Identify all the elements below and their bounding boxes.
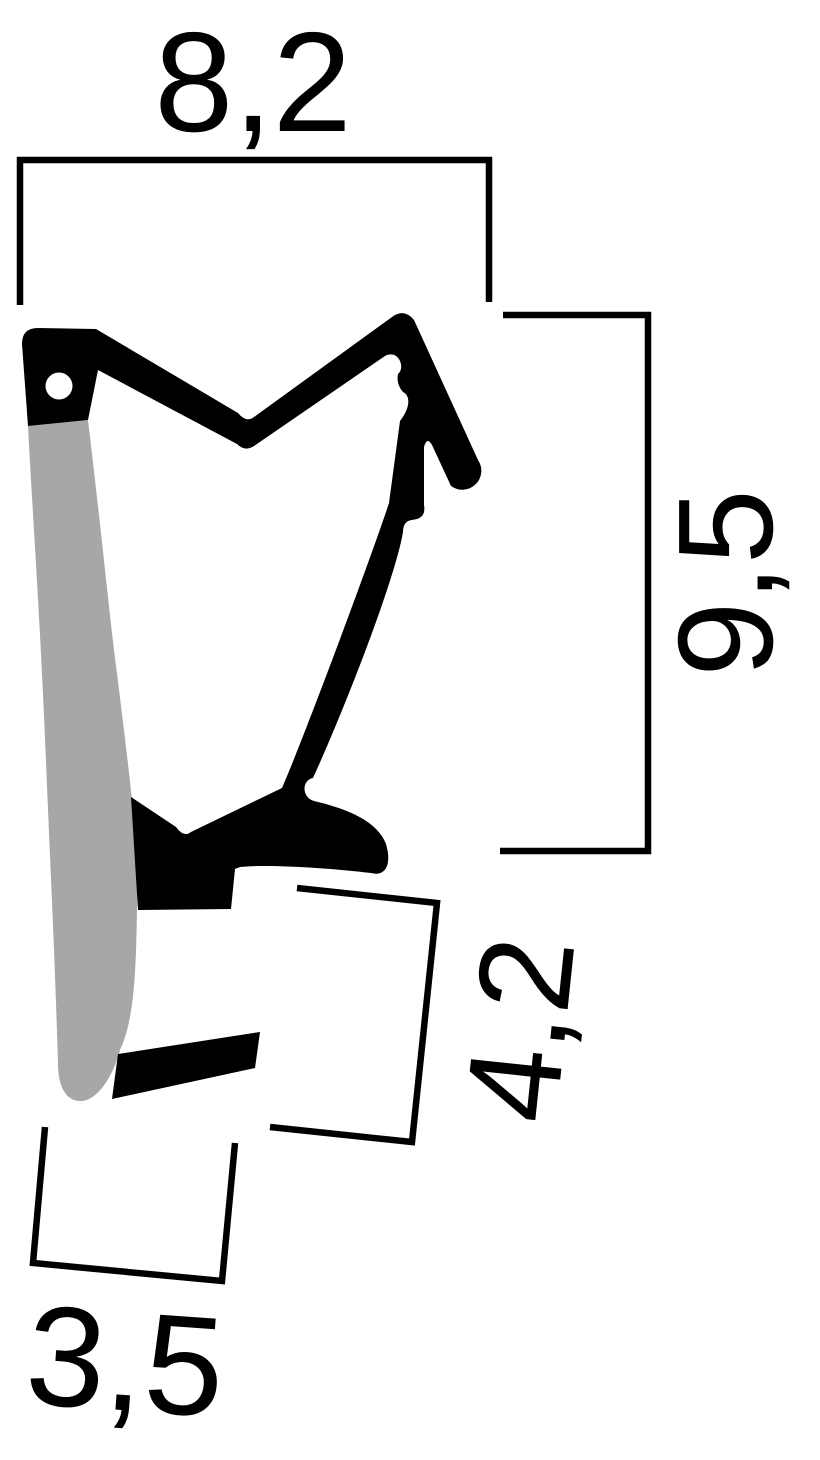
- dim-top-width-label: 8,2: [154, 3, 351, 162]
- dim-mid-height-bracket: [270, 888, 437, 1142]
- dimension-labels: 8,2 9,5 4,2 3,5: [21, 3, 801, 1448]
- dim-right-height-bracket: [500, 315, 648, 851]
- dim-bottom-width-label: 3,5: [21, 1275, 229, 1447]
- profile-drawing-svg: 8,2 9,5 4,2 3,5: [0, 0, 820, 1460]
- drawing-canvas: 8,2 9,5 4,2 3,5: [0, 0, 820, 1460]
- bottom-fin: [112, 1032, 260, 1099]
- screw-hole: [46, 373, 73, 400]
- dim-right-height-label: 9,5: [650, 489, 801, 677]
- dim-bottom-width-bracket: [33, 1127, 235, 1281]
- soft-rubber-lip: [28, 420, 137, 1101]
- dim-mid-height-label: 4,2: [437, 930, 602, 1128]
- dim-top-width-bracket: [20, 160, 489, 305]
